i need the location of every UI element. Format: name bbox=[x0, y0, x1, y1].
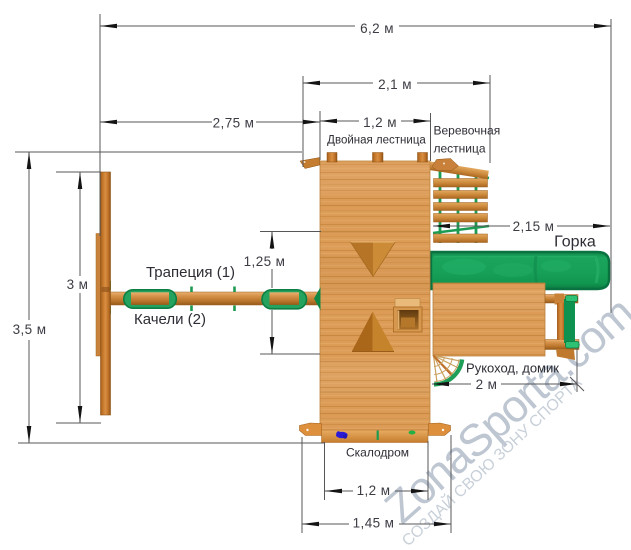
svg-text:Горка: Горка bbox=[554, 234, 596, 251]
svg-text:2,15 м: 2,15 м bbox=[513, 219, 555, 234]
svg-text:1,25 м: 1,25 м bbox=[244, 254, 286, 269]
svg-text:Скалодром: Скалодром bbox=[346, 446, 409, 460]
svg-text:Качели (2): Качели (2) bbox=[134, 311, 206, 328]
svg-text:2,75 м: 2,75 м bbox=[213, 116, 255, 131]
svg-text:1,2 м: 1,2 м bbox=[357, 483, 391, 498]
svg-text:Рукоход, домик: Рукоход, домик bbox=[466, 361, 559, 376]
svg-text:1,2 м: 1,2 м bbox=[363, 115, 397, 130]
svg-text:1,45 м: 1,45 м bbox=[353, 516, 395, 531]
svg-text:лестница: лестница bbox=[434, 142, 486, 156]
svg-text:2,1 м: 2,1 м bbox=[378, 77, 412, 92]
svg-text:Веревочная: Веревочная bbox=[434, 124, 501, 138]
svg-text:Трапеция (1): Трапеция (1) bbox=[146, 264, 235, 281]
svg-text:6,2 м: 6,2 м bbox=[360, 21, 394, 36]
svg-text:3 м: 3 м bbox=[67, 277, 89, 292]
svg-text:Двойная лестница: Двойная лестница bbox=[327, 135, 426, 147]
svg-text:3,5 м: 3,5 м bbox=[13, 322, 47, 337]
svg-text:2 м: 2 м bbox=[476, 377, 498, 392]
